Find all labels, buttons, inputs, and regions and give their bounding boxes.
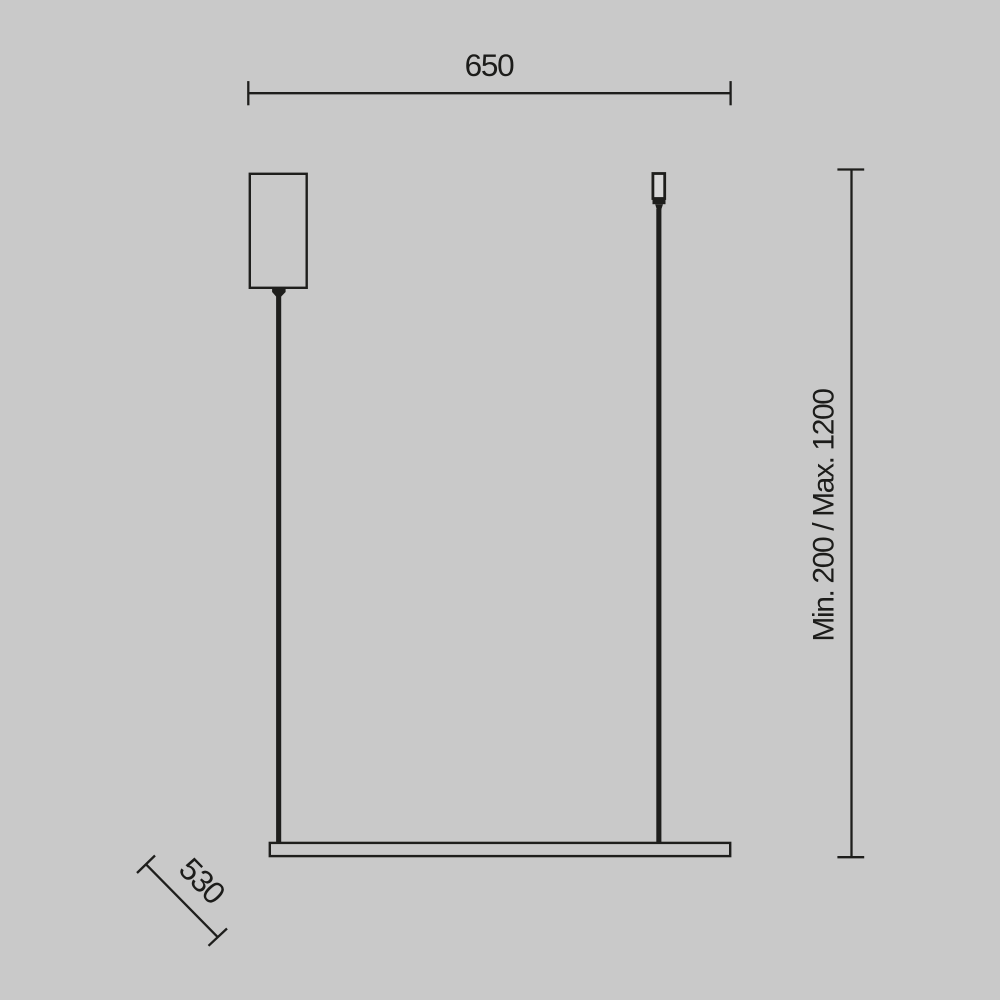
- svg-text:650: 650: [465, 47, 514, 83]
- svg-text:530: 530: [172, 851, 232, 911]
- svg-text:Min. 200 / Max. 1200: Min. 200 / Max. 1200: [808, 389, 841, 642]
